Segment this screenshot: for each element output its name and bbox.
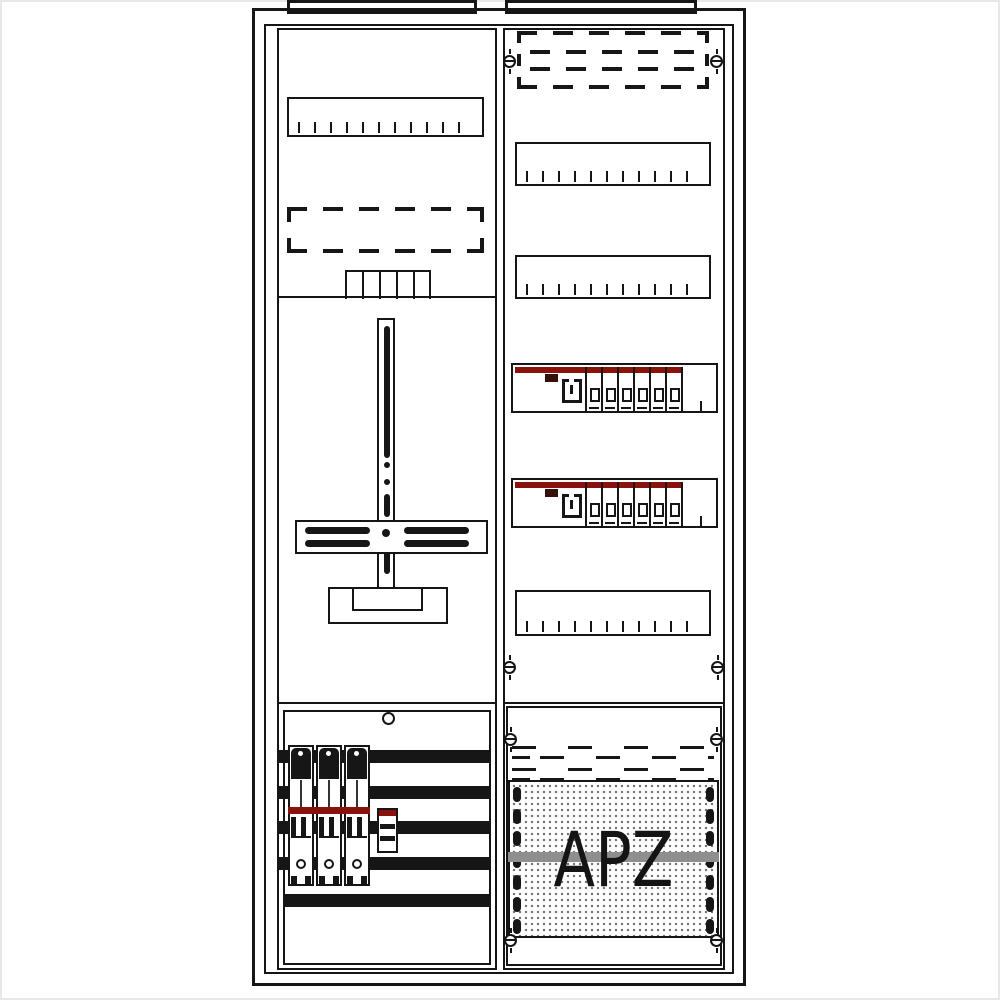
- breaker-toggle: [590, 503, 600, 517]
- breaker-toggle: [606, 503, 616, 517]
- meter-cabinet-diagram: APZ: [0, 0, 1000, 1000]
- rail-slot: [404, 540, 469, 547]
- device-stripe: [380, 824, 395, 829]
- fuse-terminal-band: [319, 817, 339, 838]
- terminal-comb: [345, 270, 431, 299]
- din-rail-cover: [515, 255, 711, 299]
- fuse-screw: [352, 859, 362, 869]
- din-rail-cover: [515, 142, 711, 186]
- fuse-foot: [291, 876, 297, 885]
- terminal-device: [377, 808, 398, 853]
- meter-rail-horizontal: [295, 520, 488, 554]
- fuse-screw: [324, 859, 334, 869]
- screw-slot: [506, 738, 515, 740]
- meter-base-plate-inner: [352, 587, 423, 611]
- screw-slot: [712, 939, 721, 941]
- rail-slot: [404, 527, 469, 534]
- breaker-module: [633, 482, 650, 528]
- screw-icon: [503, 661, 516, 674]
- fuse-foot: [319, 876, 325, 885]
- reserve-box-dashed-edge: [517, 31, 521, 89]
- din-clip-tick: [700, 401, 702, 411]
- perforation-oval: [706, 787, 714, 802]
- rail-center-hole: [382, 529, 390, 537]
- fuse-red-stripe: [288, 807, 370, 814]
- breaker-toggle: [622, 388, 632, 402]
- marking-square: [545, 374, 558, 382]
- breaker-module: [665, 367, 682, 413]
- fuse-indicator-dot: [326, 751, 331, 756]
- rail-hole: [384, 462, 390, 468]
- perforation-oval: [706, 809, 714, 824]
- breaker-row: [511, 478, 718, 528]
- fuse-screw: [296, 859, 306, 869]
- module-divider: [681, 482, 683, 528]
- breaker-module: [601, 482, 618, 528]
- breaker-toggle: [670, 388, 680, 402]
- fuse-indicator-dot: [298, 751, 303, 756]
- screw-slot: [712, 60, 721, 62]
- fuse-terminal-band: [347, 817, 367, 838]
- reserve-box-dashed-edge: [705, 31, 709, 89]
- breaker-toggle: [638, 503, 648, 517]
- breaker-toggle: [590, 388, 600, 402]
- fuse-terminal-band: [291, 817, 311, 838]
- reserve-box-dashed-row: [530, 50, 696, 54]
- perforation-oval: [513, 787, 521, 802]
- screw-icon: [710, 934, 723, 947]
- perforation-oval: [513, 831, 521, 846]
- screw-icon: [710, 733, 723, 746]
- marking-square: [545, 489, 558, 497]
- rail-slot: [305, 527, 370, 534]
- device-red-cap: [379, 810, 396, 816]
- screw-icon: [504, 934, 517, 947]
- rail-tick-marks: [298, 122, 474, 133]
- breaker-module: [585, 482, 602, 528]
- breaker-toggle: [654, 388, 664, 402]
- busbar: [285, 894, 490, 907]
- reserve-box-dashed-row: [530, 67, 696, 71]
- breaker-toggle: [670, 503, 680, 517]
- device-stripe: [380, 836, 395, 841]
- rail-tick-marks: [526, 171, 701, 182]
- reserve-box-corner: [287, 207, 291, 222]
- screw-icon: [710, 55, 723, 68]
- rail-tick-marks: [526, 621, 701, 632]
- din-rail-cover: [515, 590, 711, 636]
- breaker-module: [649, 482, 666, 528]
- reserve-box-corner: [287, 238, 291, 253]
- perforation-oval: [513, 809, 521, 824]
- breaker-toggle: [622, 503, 632, 517]
- reserve-box-dashed-bottom: [287, 249, 484, 253]
- cable-entry-dashed-row: [512, 746, 714, 759]
- perforation-oval: [513, 919, 521, 934]
- perforation-oval: [706, 831, 714, 846]
- fuse-wire: [300, 780, 302, 810]
- module-divider: [681, 367, 683, 413]
- fuse-switch-unit: [344, 745, 370, 886]
- screw-icon: [503, 55, 516, 68]
- screw-icon: [711, 661, 724, 674]
- terminal-symbol-icon: [562, 494, 582, 518]
- reserve-box-corner: [480, 238, 484, 253]
- reserve-box-dashed-row: [517, 31, 709, 35]
- breaker-module: [649, 367, 666, 413]
- screw-slot: [712, 738, 721, 740]
- breaker-module: [633, 367, 650, 413]
- breaker-toggle: [654, 503, 664, 517]
- rail-tick-marks: [526, 284, 701, 295]
- fuse-switch-unit: [288, 745, 314, 886]
- rail-hole: [384, 479, 390, 485]
- screw-slot: [505, 60, 514, 62]
- left-column-divider-bottom: [279, 702, 495, 704]
- screw-slot: [505, 666, 514, 668]
- fuse-wire: [356, 780, 358, 810]
- screw-slot: [506, 939, 515, 941]
- breaker-module: [665, 482, 682, 528]
- perforation-oval: [706, 919, 714, 934]
- perforation-oval: [513, 897, 521, 912]
- breaker-toggle: [638, 388, 648, 402]
- fuse-foot: [305, 876, 311, 885]
- breaker-module: [617, 482, 634, 528]
- rail-slot: [384, 326, 390, 458]
- apz-label: APZ: [529, 822, 698, 898]
- rail-slot: [384, 494, 390, 517]
- breaker-module: [585, 367, 602, 413]
- reserve-box-dashed-row: [517, 85, 709, 89]
- reserve-box-dashed-top: [287, 207, 484, 211]
- fuse-foot: [333, 876, 339, 885]
- perforation-oval: [706, 875, 714, 890]
- reserve-box-corner: [480, 207, 484, 222]
- fuse-switch-unit: [316, 745, 342, 886]
- rail-slot: [305, 540, 370, 547]
- fuse-foot: [361, 876, 367, 885]
- screw-slot: [713, 666, 722, 668]
- breaker-module: [601, 367, 618, 413]
- right-column-divider-bottom: [505, 702, 723, 704]
- fuse-wire: [328, 780, 330, 810]
- fuse-foot: [347, 876, 353, 885]
- din-rail-cover: [287, 97, 484, 137]
- breaker-toggle: [606, 388, 616, 402]
- perforation-oval: [513, 875, 521, 890]
- perforation-oval: [706, 897, 714, 912]
- din-clip-tick: [700, 516, 702, 526]
- fuse-indicator-dot: [354, 751, 359, 756]
- terminal-symbol-icon: [562, 379, 582, 403]
- breaker-row: [511, 363, 718, 413]
- breaker-module: [617, 367, 634, 413]
- panel-hole: [382, 712, 395, 725]
- screw-icon: [504, 733, 517, 746]
